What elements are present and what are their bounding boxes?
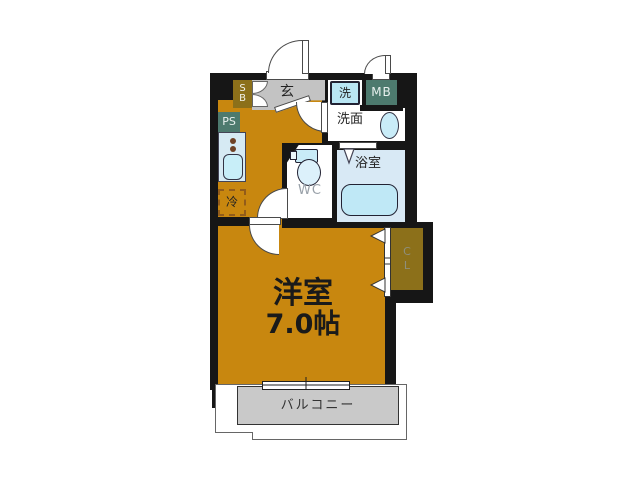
room-size-label: 7.0帖 [228,310,378,340]
bathroom-door [339,142,377,149]
washroom-label: 洗面 [330,111,370,129]
washroom-door-leaf [321,102,328,133]
floor-plan: 玄 S B 洗 MB 洗面 浴室 WC PS 冷 [0,0,640,480]
closet: C L [391,228,423,290]
toilet-label: WC [292,183,328,199]
pipe-space: PS [218,112,240,132]
burner-dot-1-icon [230,138,236,144]
closet-sliding-door [384,227,391,297]
meter-box-door-arc-icon [364,55,385,74]
bathroom-label: 浴室 [346,155,390,173]
room-name-label: 洋室 [228,278,378,310]
meter-box: MB [366,80,397,105]
washbasin-icon [380,112,399,139]
balcony-outline-step [252,432,407,440]
toilet-bowl-icon [297,159,321,186]
wall-room-door-stub [218,217,249,226]
balcony-window [262,381,350,390]
fridge-space: 冷 [218,189,246,216]
bathtub-icon [341,184,398,216]
shoe-box: S B [233,80,252,108]
entrance-door-arc-icon [268,40,302,73]
balcony-floor: バルコニー [237,386,399,425]
entrance-door-leaf [302,40,309,74]
burner-dot-2-icon [230,146,236,152]
kitchen-sink-icon [223,154,243,180]
toilet-handle-icon [290,151,297,160]
room-doorway [249,217,281,225]
washer-pan: 洗 [330,81,360,105]
meter-box-door-leaf [385,55,391,74]
